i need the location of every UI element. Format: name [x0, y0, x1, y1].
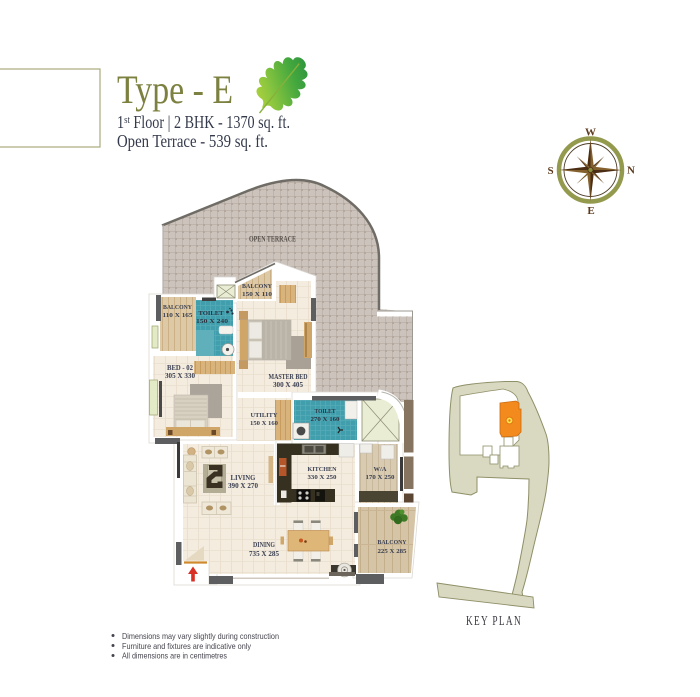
svg-text:735 X 285: 735 X 285 — [249, 550, 279, 558]
svg-text:BALCONY: BALCONY — [378, 539, 407, 546]
svg-text:KITCHEN: KITCHEN — [308, 466, 337, 473]
svg-text:W/A: W/A — [374, 466, 387, 473]
svg-text:225 X 285: 225 X 285 — [378, 548, 408, 555]
svg-text:OPEN TERRACE: OPEN TERRACE — [249, 235, 296, 244]
svg-text:Furniture and fixtures are ind: Furniture and fixtures are indicative on… — [122, 641, 252, 651]
svg-text:390 X 270: 390 X 270 — [228, 482, 258, 490]
svg-text:330 X 250: 330 X 250 — [308, 474, 337, 481]
svg-text:305 X 330: 305 X 330 — [165, 372, 195, 380]
svg-text:All dimensions are in centimet: All dimensions are in centimetres — [122, 651, 227, 661]
svg-text:LIVING: LIVING — [231, 474, 257, 482]
svg-text:DINING: DINING — [253, 541, 275, 549]
svg-text:BALCONY: BALCONY — [242, 283, 272, 290]
svg-text:S: S — [547, 165, 553, 177]
svg-text:170 X 250: 170 X 250 — [366, 474, 395, 481]
svg-text:Open Terrace - 539 sq. ft.: Open Terrace - 539 sq. ft. — [117, 131, 268, 151]
svg-text:150 X 110: 150 X 110 — [242, 291, 272, 298]
svg-text:300 X 405: 300 X 405 — [273, 381, 303, 389]
svg-text:150 X 160: 150 X 160 — [250, 420, 278, 427]
svg-text:MASTER BED: MASTER BED — [269, 373, 308, 381]
svg-text:Type - E: Type - E — [117, 67, 233, 112]
svg-text:BALCONY: BALCONY — [163, 304, 192, 311]
svg-text:E: E — [587, 205, 594, 217]
svg-text:KEY PLAN: KEY PLAN — [466, 614, 522, 629]
svg-text:TOILET: TOILET — [315, 408, 337, 415]
svg-text:150 X 240: 150 X 240 — [196, 318, 228, 325]
svg-text:1st Floor | 2 BHK - 1370 sq. f: 1st Floor | 2 BHK - 1370 sq. ft. — [117, 112, 290, 132]
svg-text:270 X 160: 270 X 160 — [311, 416, 340, 423]
svg-text:Dimensions may vary slightly d: Dimensions may vary slightly during cons… — [122, 631, 279, 641]
svg-text:BED - 02: BED - 02 — [167, 364, 193, 372]
svg-text:W: W — [585, 127, 596, 139]
svg-text:UTILITY: UTILITY — [251, 412, 278, 419]
svg-text:N: N — [627, 165, 635, 177]
svg-text:TOILET: TOILET — [199, 310, 225, 317]
svg-text:110 X 165: 110 X 165 — [163, 312, 194, 319]
